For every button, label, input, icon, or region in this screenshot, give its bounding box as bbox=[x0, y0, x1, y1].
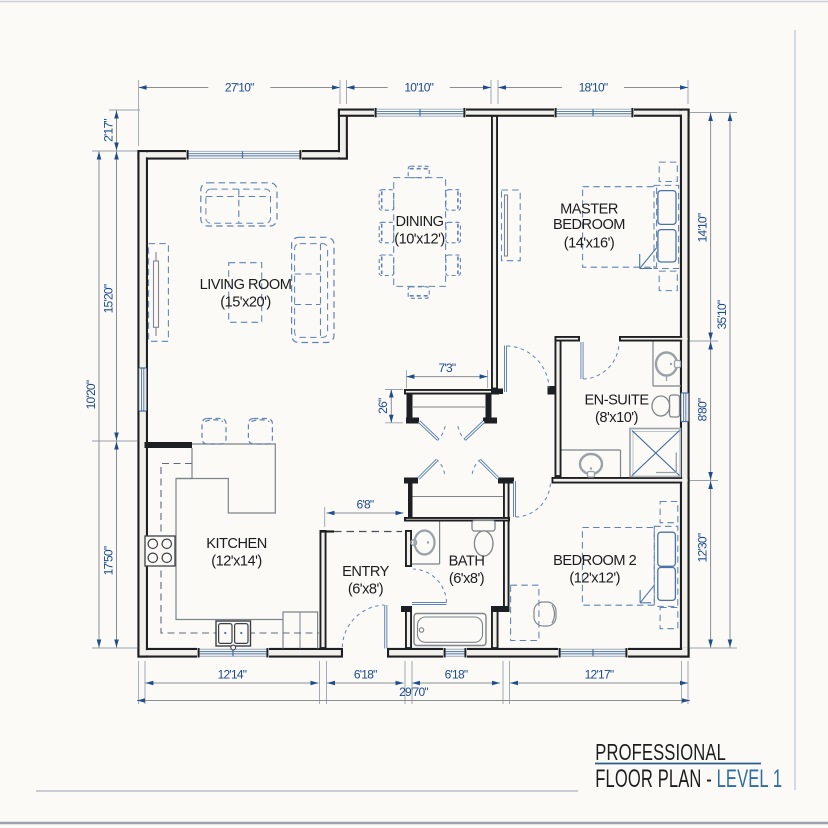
svg-text:ENTRY: ENTRY bbox=[342, 564, 389, 580]
svg-text:12'30": 12'30" bbox=[696, 533, 710, 562]
svg-text:2'17": 2'17" bbox=[102, 119, 116, 142]
svg-text:(15'x20'): (15'x20') bbox=[220, 295, 271, 311]
svg-text:(12'x12'): (12'x12') bbox=[569, 571, 620, 587]
svg-text:(12'x14'): (12'x14') bbox=[211, 554, 262, 570]
svg-text:10'20": 10'20" bbox=[84, 380, 98, 409]
svg-text:DINING: DINING bbox=[395, 214, 443, 230]
svg-text:27'10": 27'10" bbox=[225, 81, 254, 95]
svg-text:6'18": 6'18" bbox=[354, 668, 377, 682]
svg-text:8'80": 8'80" bbox=[696, 398, 710, 421]
svg-text:12'17": 12'17" bbox=[585, 668, 614, 682]
svg-text:KITCHEN: KITCHEN bbox=[206, 536, 267, 552]
svg-text:14'10": 14'10" bbox=[696, 213, 710, 242]
svg-text:EN-SUITE: EN-SUITE bbox=[584, 393, 649, 409]
svg-text:BEDROOM 2: BEDROOM 2 bbox=[553, 553, 636, 569]
svg-text:(6'x8'): (6'x8') bbox=[449, 571, 484, 587]
svg-text:6'8": 6'8" bbox=[357, 498, 374, 512]
svg-text:BEDROOM: BEDROOM bbox=[553, 217, 625, 233]
svg-text:PROFESSIONAL: PROFESSIONAL bbox=[595, 740, 726, 765]
svg-text:FLOOR PLAN - LEVEL 1: FLOOR PLAN - LEVEL 1 bbox=[595, 766, 782, 793]
svg-text:6'18": 6'18" bbox=[445, 668, 468, 682]
svg-text:(14'x16'): (14'x16') bbox=[564, 235, 615, 251]
svg-text:12'14": 12'14" bbox=[218, 668, 247, 682]
svg-text:BATH: BATH bbox=[449, 554, 485, 570]
svg-text:35'10": 35'10" bbox=[715, 300, 729, 329]
svg-text:(6'x8'): (6'x8') bbox=[348, 582, 383, 598]
svg-text:26": 26" bbox=[376, 398, 390, 414]
svg-text:15'20": 15'20" bbox=[102, 284, 116, 313]
svg-text:17'50": 17'50" bbox=[102, 546, 116, 575]
svg-text:18'10": 18'10" bbox=[579, 81, 608, 95]
svg-text:10'10": 10'10" bbox=[404, 81, 433, 95]
svg-text:LIVING ROOM: LIVING ROOM bbox=[200, 277, 292, 293]
svg-text:(10'x12'): (10'x12') bbox=[394, 232, 445, 248]
svg-text:(8'x10'): (8'x10') bbox=[595, 410, 638, 426]
svg-text:29'70": 29'70" bbox=[399, 685, 428, 699]
svg-text:7'3": 7'3" bbox=[439, 361, 456, 375]
svg-text:MASTER: MASTER bbox=[560, 202, 618, 218]
